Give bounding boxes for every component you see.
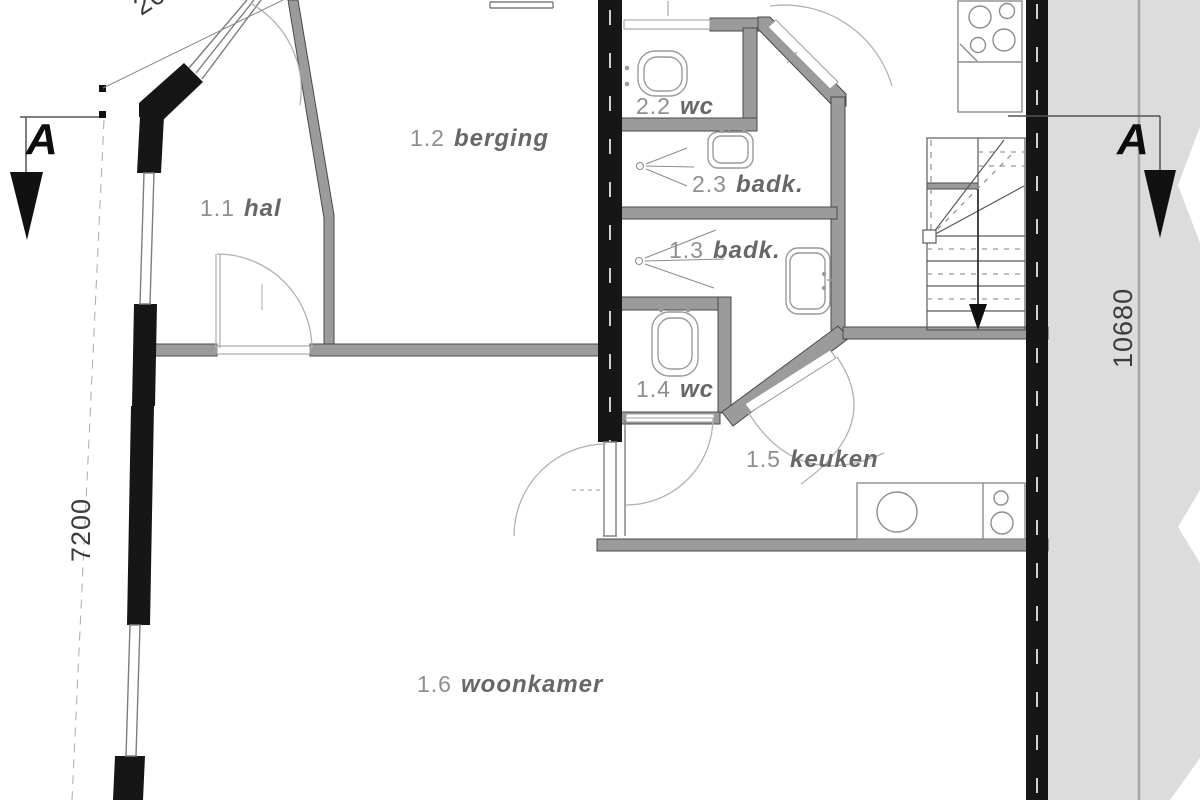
room-number: 1.3 (669, 237, 704, 264)
toilet-1-4 (652, 308, 698, 376)
room-number: 2.3 (692, 171, 727, 198)
section-arrow-left (10, 172, 43, 240)
staircase (923, 138, 1025, 330)
room-label-berging: 1.2 berging (410, 125, 549, 153)
floor-plan-canvas: 1.1 hal 1.2 berging 2.2 wc 2.3 badk. 1.3… (0, 0, 1200, 800)
dim-node-2 (99, 111, 106, 118)
facade-seg-1 (137, 116, 164, 173)
facade-seg-2 (132, 304, 157, 406)
room-label-keuken: 1.5 keuken (746, 446, 879, 474)
room-name: badk. (713, 237, 781, 265)
wall-keuken-door (722, 326, 849, 426)
facade-window-1 (139, 173, 155, 304)
opening-wc22-window (624, 20, 710, 29)
facade-corner (139, 63, 203, 120)
wall-keuken-bottom (597, 539, 1048, 551)
opening-hal-door (217, 346, 310, 354)
room-name: keuken (790, 446, 879, 474)
section-letter-left: A (26, 118, 58, 162)
leaf-chamfer-door (768, 20, 838, 89)
room-label-wc22: 2.2 wc (636, 93, 714, 121)
arc-hal-door (217, 254, 312, 349)
shower-symbol-2-3 (637, 148, 695, 186)
wall-hal-bottom-right (310, 344, 600, 356)
wall-stairs-bottom (843, 327, 1048, 339)
room-number: 2.2 (636, 93, 671, 120)
room-number: 1.2 (410, 125, 445, 152)
stairs-direction-arrow (969, 189, 987, 330)
wall-badk-divider (618, 207, 837, 219)
facade-window-2 (125, 625, 141, 756)
cooktop-upper (958, 1, 1022, 112)
dim-node-1 (99, 85, 106, 92)
room-number: 1.4 (636, 376, 671, 403)
room-label-badk13: 1.3 badk. (669, 237, 781, 265)
wall-wc14-right (718, 297, 731, 413)
dimension-10680: 10680 (1108, 288, 1139, 368)
dimension-7200: 7200 (66, 498, 97, 562)
dim-line-left (72, 120, 104, 800)
leaf-keuken-door (745, 350, 836, 412)
section-letter-right: A (1117, 118, 1149, 162)
basin-2-3 (708, 126, 753, 168)
room-label-wc14: 1.4 wc (636, 376, 714, 404)
wall-wc22-right (743, 28, 757, 120)
room-label-woonkamer: 1.6 woonkamer (417, 671, 603, 699)
room-label-hal: 1.1 hal (200, 195, 282, 223)
room-number: 1.5 (746, 446, 781, 473)
front-door-leaf (189, 0, 261, 79)
facade-seg-4 (113, 756, 145, 800)
room-name: hal (244, 195, 282, 223)
toilet-2-2 (625, 51, 687, 96)
room-name: badk. (736, 171, 804, 199)
room-number: 1.1 (200, 195, 235, 222)
room-label-badk23: 2.3 badk. (692, 171, 804, 199)
room-name: woonkamer (461, 671, 603, 699)
arc-wc14-door (626, 418, 713, 505)
arc-woonkamer-door (514, 444, 606, 536)
room-name: wc (680, 93, 714, 121)
wall-hal-bottom-left (150, 344, 217, 356)
room-number: 1.6 (417, 671, 452, 698)
section-line (10, 116, 1176, 240)
kitchen-counter (857, 483, 1025, 539)
room-name: wc (680, 376, 714, 404)
room-name: berging (454, 125, 549, 153)
facade-seg-3 (127, 406, 154, 625)
basin-1-3 (786, 248, 833, 314)
wall-wc14-top (618, 297, 731, 310)
kitchen-sink (877, 492, 917, 532)
windows (125, 0, 625, 756)
berging-window (490, 2, 553, 8)
